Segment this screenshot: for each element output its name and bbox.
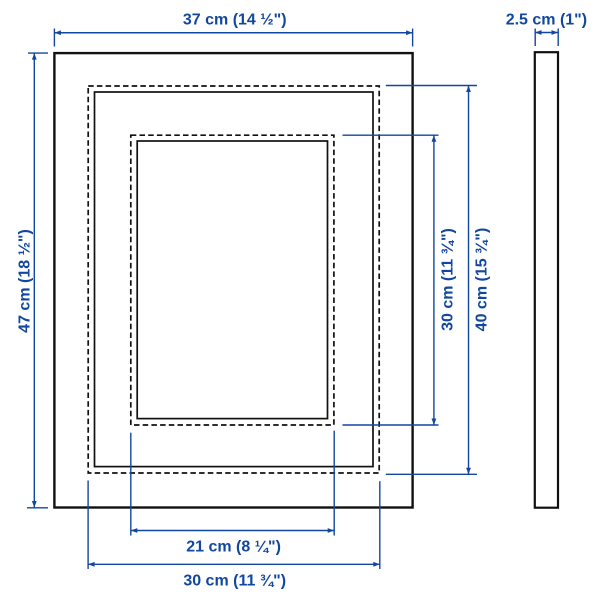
svg-text:2.5 cm (1"): 2.5 cm (1") xyxy=(506,12,587,29)
svg-text:37 cm (14 ½"): 37 cm (14 ½") xyxy=(183,12,287,29)
svg-text:40 cm (15 ¾"): 40 cm (15 ¾") xyxy=(474,228,491,332)
svg-text:21 cm (8 ¼"): 21 cm (8 ¼") xyxy=(186,538,281,555)
svg-text:30 cm (11 ¾"): 30 cm (11 ¾") xyxy=(183,572,286,589)
svg-text:30 cm (11 ¾"): 30 cm (11 ¾") xyxy=(440,228,457,331)
svg-text:47 cm (18 ½"): 47 cm (18 ½") xyxy=(17,229,34,333)
